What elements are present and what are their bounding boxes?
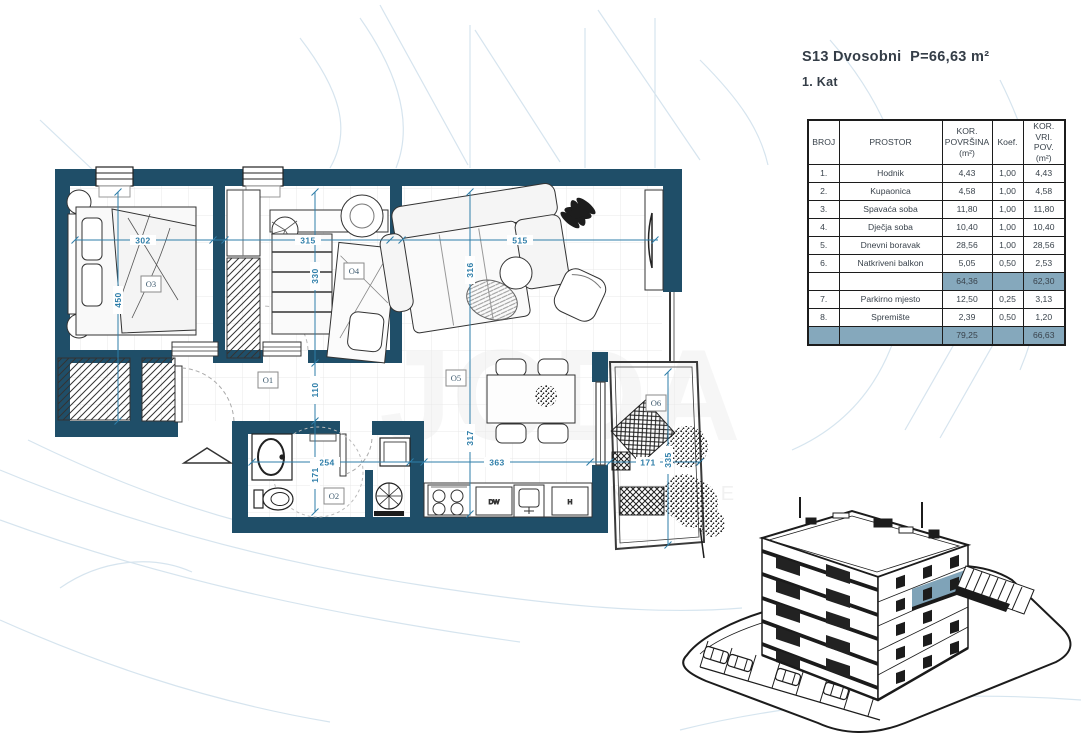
cell-prostor <box>839 272 942 290</box>
cabinet-label: H <box>568 499 573 506</box>
shelf <box>272 234 332 334</box>
dim-315: 315 <box>300 236 315 246</box>
pillow <box>347 311 385 352</box>
wardrobe <box>227 258 260 358</box>
cell-povrsina: 5,05 <box>942 254 992 272</box>
cell-broj <box>808 272 839 290</box>
building-3d <box>670 480 1070 732</box>
dim-171-bathroom: 171 <box>310 467 320 482</box>
cell-broj <box>808 326 839 345</box>
cell-koef: 1,00 <box>992 200 1023 218</box>
dim-515: 515 <box>512 236 527 246</box>
table-row: 5. Dnevni boravak 28,56 1,00 28,56 <box>808 236 1065 254</box>
dim-171-balcony: 171 <box>640 458 655 468</box>
cell-broj: 4. <box>808 218 839 236</box>
plan-title: S13 Dvosobni P=66,63 m² <box>802 49 989 65</box>
cell-total-vri-pov: 66,63 <box>1023 326 1065 345</box>
dim-317: 317 <box>465 430 475 445</box>
dishwasher-label: DW <box>489 499 501 506</box>
table-row: 8. Spremište 2,39 0,50 1,20 <box>808 308 1065 326</box>
room-label-o2: O2 <box>329 491 339 501</box>
table-row: 4. Dječja soba 10,40 1,00 10,40 <box>808 218 1065 236</box>
cell-vri-pov: 28,56 <box>1023 236 1065 254</box>
cell-koef: 0,25 <box>992 290 1023 308</box>
cell-povrsina: 28,56 <box>942 236 992 254</box>
chair <box>496 424 526 443</box>
dim-450: 450 <box>113 292 123 307</box>
cell-koef: 0,50 <box>992 254 1023 272</box>
bathroom-shelf <box>310 434 336 441</box>
bathroom-sink <box>252 434 292 480</box>
title-block: S13 Dvosobni P=66,63 m² 1. Kat <box>802 49 989 89</box>
room-label-o5: O5 <box>451 373 461 383</box>
cell-vri-pov: 3,13 <box>1023 290 1065 308</box>
chair <box>538 424 568 443</box>
cell-prostor: Spremište <box>839 308 942 326</box>
cell-vri-pov: 11,80 <box>1023 200 1065 218</box>
cell-total-povrsina: 79,25 <box>942 326 992 345</box>
cell-broj: 1. <box>808 164 839 182</box>
cell-prostor <box>839 326 942 345</box>
dim-330: 330 <box>310 268 320 283</box>
room-label-o3: O3 <box>146 279 156 289</box>
table-header-row: BROJ PROSTOR KOR. POVRŠINA (m²) Koef. KO… <box>808 120 1065 164</box>
cell-vri-pov: 4,58 <box>1023 182 1065 200</box>
cell-vri-pov: 4,43 <box>1023 164 1065 182</box>
room-label-o4: O4 <box>349 266 360 276</box>
subtotal-row: 64,36 62,30 <box>808 272 1065 290</box>
cell-povrsina: 10,40 <box>942 218 992 236</box>
chair <box>538 359 568 376</box>
cell-povrsina: 4,58 <box>942 182 992 200</box>
pillow <box>82 264 102 306</box>
total-row: 79,25 66,63 <box>808 326 1065 345</box>
table-row: 1. Hodnik 4,43 1,00 4,43 <box>808 164 1065 182</box>
cell-prostor: Dnevni boravak <box>839 236 942 254</box>
pillow <box>82 218 102 260</box>
dim-302: 302 <box>135 236 150 246</box>
cell-povrsina: 12,50 <box>942 290 992 308</box>
sliding-door-kidsroom <box>263 342 301 356</box>
room-label-o1: O1 <box>263 375 273 385</box>
chair <box>496 359 526 376</box>
cell-prostor: Dječja soba <box>839 218 942 236</box>
dim-110: 110 <box>310 383 320 398</box>
cell-koef: 1,00 <box>992 182 1023 200</box>
cell-koef: 1,00 <box>992 236 1023 254</box>
col-header-kor-povrsina: KOR. POVRŠINA (m²) <box>942 120 992 164</box>
cell-koef: 0,50 <box>992 308 1023 326</box>
cell-povrsina: 4,43 <box>942 164 992 182</box>
cell-vri-pov: 1,20 <box>1023 308 1065 326</box>
cell-broj: 5. <box>808 236 839 254</box>
cell-subtotal-povrsina: 64,36 <box>942 272 992 290</box>
plan-sheet: JODA N E K R E T N I N E <box>0 0 1081 749</box>
cell-prostor: Spavaća soba <box>839 200 942 218</box>
table-row: 7. Parkirno mjesto 12,50 0,25 3,13 <box>808 290 1065 308</box>
col-header-prostor: PROSTOR <box>839 120 942 164</box>
dim-335: 335 <box>663 452 673 467</box>
round-chair <box>341 195 383 237</box>
table-row: 3. Spavaća soba 11,80 1,00 11,80 <box>808 200 1065 218</box>
cell-vri-pov: 10,40 <box>1023 218 1065 236</box>
cell-prostor: Kupaonica <box>839 182 942 200</box>
cell-broj: 7. <box>808 290 839 308</box>
cell-subtotal-vri-pov: 62,30 <box>1023 272 1065 290</box>
cell-broj: 6. <box>808 254 839 272</box>
cell-subtotal-koef <box>992 272 1023 290</box>
cell-prostor: Natkriveni balkon <box>839 254 942 272</box>
toilet <box>254 488 293 510</box>
shower <box>374 483 404 516</box>
area-table: BROJ PROSTOR KOR. POVRŠINA (m²) Koef. KO… <box>807 119 1066 346</box>
cell-povrsina: 2,39 <box>942 308 992 326</box>
sliding-door-bedroom <box>172 342 218 356</box>
dim-316: 316 <box>465 262 475 277</box>
stove <box>428 485 470 515</box>
centerpiece-plant <box>535 385 557 407</box>
kitchen: DW H <box>424 483 592 517</box>
table-row: 6. Natkriveni balkon 5,05 0,50 2,53 <box>808 254 1065 272</box>
wardrobe <box>58 358 130 420</box>
entrance-arrow <box>184 448 231 463</box>
cell-broj: 3. <box>808 200 839 218</box>
dim-254: 254 <box>319 458 334 468</box>
window-bedroom <box>96 167 133 197</box>
col-header-kor-vri-pov: KOR. VRI. POV. (m²) <box>1023 120 1065 164</box>
floor-label: 1. Kat <box>802 75 989 89</box>
bed-headboard <box>68 214 76 314</box>
table-row: 2. Kupaonica 4,58 1,00 4,58 <box>808 182 1065 200</box>
room-label-o6: O6 <box>651 398 661 408</box>
cell-total-koef <box>992 326 1023 345</box>
dim-363: 363 <box>489 458 504 468</box>
cell-koef: 1,00 <box>992 218 1023 236</box>
wardrobe <box>142 358 175 421</box>
cell-vri-pov: 2,53 <box>1023 254 1065 272</box>
cell-povrsina: 11,80 <box>942 200 992 218</box>
col-header-broj: BROJ <box>808 120 839 164</box>
cell-broj: 8. <box>808 308 839 326</box>
col-header-koef: Koef. <box>992 120 1023 164</box>
furniture-bedroom <box>58 190 196 421</box>
cell-prostor: Parkirno mjesto <box>839 290 942 308</box>
pouf <box>500 257 532 289</box>
kitchen-sink <box>514 485 544 517</box>
outdoor-bench <box>620 487 664 515</box>
cell-koef: 1,00 <box>992 164 1023 182</box>
outdoor-table <box>612 452 630 470</box>
dining-table <box>487 375 575 423</box>
cell-prostor: Hodnik <box>839 164 942 182</box>
cell-broj: 2. <box>808 182 839 200</box>
